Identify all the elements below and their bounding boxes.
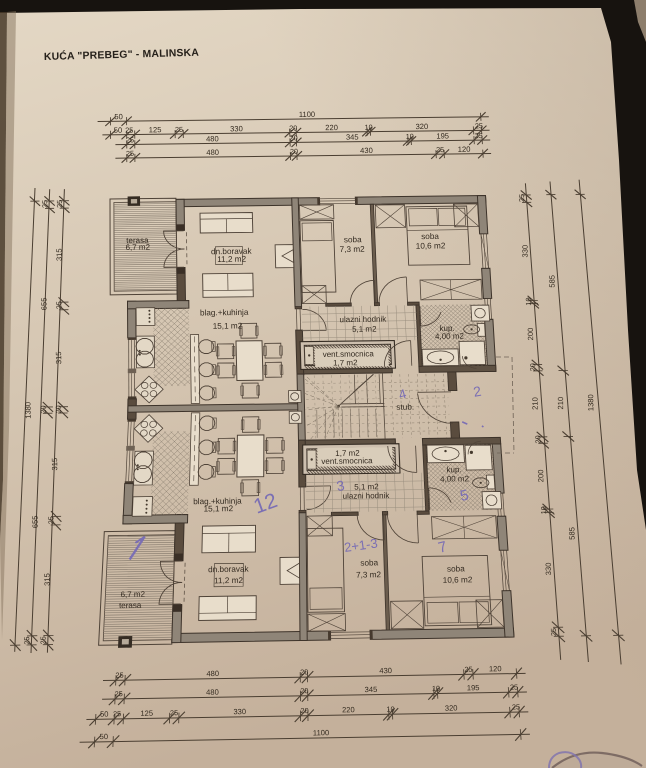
svg-text:25: 25 (115, 689, 123, 698)
svg-text:soba: soba (344, 235, 362, 244)
svg-text:4,00 m2: 4,00 m2 (435, 332, 465, 341)
svg-text:1100: 1100 (299, 110, 315, 119)
svg-text:50: 50 (100, 710, 109, 719)
svg-text:25: 25 (175, 125, 183, 134)
svg-text:315: 315 (43, 573, 52, 586)
svg-text:4,00 m2: 4,00 m2 (440, 474, 470, 483)
svg-text:10: 10 (365, 123, 373, 132)
svg-text:25: 25 (510, 683, 518, 692)
svg-text:1100: 1100 (313, 728, 329, 737)
svg-text:315: 315 (50, 458, 59, 471)
svg-text:25: 25 (549, 628, 558, 636)
svg-text:6,7 m2: 6,7 m2 (125, 243, 150, 252)
svg-text:210: 210 (556, 397, 565, 410)
svg-text:25: 25 (39, 636, 48, 644)
svg-text:315: 315 (55, 248, 64, 261)
svg-text:25: 25 (113, 709, 121, 718)
svg-text:vent.smocnica: vent.smocnica (321, 456, 373, 466)
svg-text:330: 330 (230, 124, 243, 133)
svg-text:120: 120 (458, 145, 471, 154)
svg-text:terasa: terasa (119, 601, 142, 610)
svg-text:5,1 m2: 5,1 m2 (352, 325, 377, 334)
svg-text:25: 25 (475, 131, 483, 140)
svg-text:25: 25 (126, 135, 134, 144)
svg-text:1380: 1380 (586, 394, 595, 411)
svg-text:25: 25 (54, 301, 63, 309)
svg-text:ulazni hodnik: ulazni hodnik (339, 315, 387, 325)
svg-text:25: 25 (55, 200, 64, 208)
svg-text:430: 430 (360, 146, 373, 155)
svg-text:kup.: kup. (446, 465, 461, 474)
svg-text:200: 200 (526, 328, 535, 341)
svg-text:125: 125 (140, 709, 153, 718)
svg-text:10: 10 (406, 132, 414, 141)
svg-text:50: 50 (114, 112, 123, 121)
svg-text:25: 25 (512, 702, 520, 711)
svg-text:1380: 1380 (23, 402, 32, 419)
svg-text:20: 20 (300, 667, 308, 676)
svg-text:315: 315 (54, 351, 63, 364)
svg-text:195: 195 (436, 131, 449, 140)
svg-text:120: 120 (489, 664, 502, 673)
svg-text:330: 330 (544, 563, 553, 576)
svg-text:25: 25 (475, 121, 483, 130)
svg-text:10: 10 (539, 506, 548, 514)
svg-text:25: 25 (22, 637, 31, 645)
svg-text:585: 585 (548, 275, 557, 288)
svg-text:1,7 m2: 1,7 m2 (333, 358, 358, 367)
svg-text:50: 50 (100, 732, 109, 741)
svg-text:7,3 m2: 7,3 m2 (340, 245, 366, 254)
svg-text:210: 210 (531, 397, 540, 410)
svg-text:25: 25 (40, 200, 49, 208)
svg-text:20: 20 (300, 686, 308, 695)
svg-text:585: 585 (567, 527, 576, 540)
svg-text:25: 25 (46, 516, 55, 524)
svg-text:25: 25 (115, 671, 123, 680)
svg-text:soba: soba (421, 232, 439, 241)
svg-text:50: 50 (114, 126, 123, 135)
svg-text:10: 10 (432, 684, 440, 693)
svg-text:5,1 m2: 5,1 m2 (354, 482, 379, 491)
svg-text:6,7 m2: 6,7 m2 (120, 590, 145, 599)
svg-text:stub.: stub. (396, 403, 414, 412)
svg-text:11,2 m2: 11,2 m2 (214, 576, 244, 585)
svg-text:25: 25 (126, 149, 134, 158)
svg-text:25: 25 (517, 194, 526, 202)
svg-text:345: 345 (346, 133, 359, 142)
svg-text:soba: soba (360, 558, 378, 567)
svg-text:20: 20 (39, 405, 48, 413)
svg-text:15,1 m2: 15,1 m2 (204, 504, 234, 513)
svg-text:10,6 m2: 10,6 m2 (416, 241, 446, 250)
svg-text:20: 20 (290, 147, 298, 156)
svg-text:10,6 m2: 10,6 m2 (443, 575, 473, 584)
svg-text:25: 25 (436, 145, 444, 154)
svg-text:10: 10 (524, 297, 533, 305)
svg-text:20: 20 (289, 124, 297, 133)
svg-text:25: 25 (170, 708, 178, 717)
svg-text:195: 195 (467, 683, 480, 692)
svg-text:345: 345 (365, 685, 378, 694)
svg-text:320: 320 (445, 703, 458, 712)
svg-text:125: 125 (149, 125, 162, 134)
svg-text:480: 480 (206, 148, 219, 157)
svg-text:20: 20 (528, 363, 537, 371)
svg-text:200: 200 (536, 470, 545, 483)
svg-text:20: 20 (54, 405, 63, 413)
svg-text:ulazni hodnik: ulazni hodnik (343, 491, 391, 501)
svg-text:480: 480 (206, 688, 219, 697)
svg-text:7,3 m2: 7,3 m2 (356, 570, 382, 579)
svg-text:soba: soba (447, 564, 465, 573)
svg-text:220: 220 (325, 123, 338, 132)
svg-text:320: 320 (415, 122, 428, 131)
svg-text:655: 655 (31, 515, 40, 528)
svg-text:25: 25 (125, 126, 133, 135)
svg-text:20: 20 (300, 706, 308, 715)
svg-text:11,2 m2: 11,2 m2 (217, 255, 247, 264)
svg-text:10: 10 (386, 705, 394, 714)
svg-text:480: 480 (206, 669, 219, 678)
svg-text:20: 20 (533, 435, 542, 443)
svg-text:430: 430 (379, 666, 392, 675)
svg-text:blag.+kuhinja: blag.+kuhinja (200, 308, 249, 318)
svg-text:20: 20 (289, 133, 297, 142)
svg-text:15,1 m2: 15,1 m2 (213, 321, 243, 330)
svg-text:480: 480 (206, 134, 219, 143)
svg-text:220: 220 (342, 705, 355, 714)
svg-text:330: 330 (521, 245, 530, 258)
svg-text:330: 330 (233, 707, 246, 716)
svg-text:25: 25 (464, 665, 472, 674)
svg-text:655: 655 (39, 298, 48, 311)
